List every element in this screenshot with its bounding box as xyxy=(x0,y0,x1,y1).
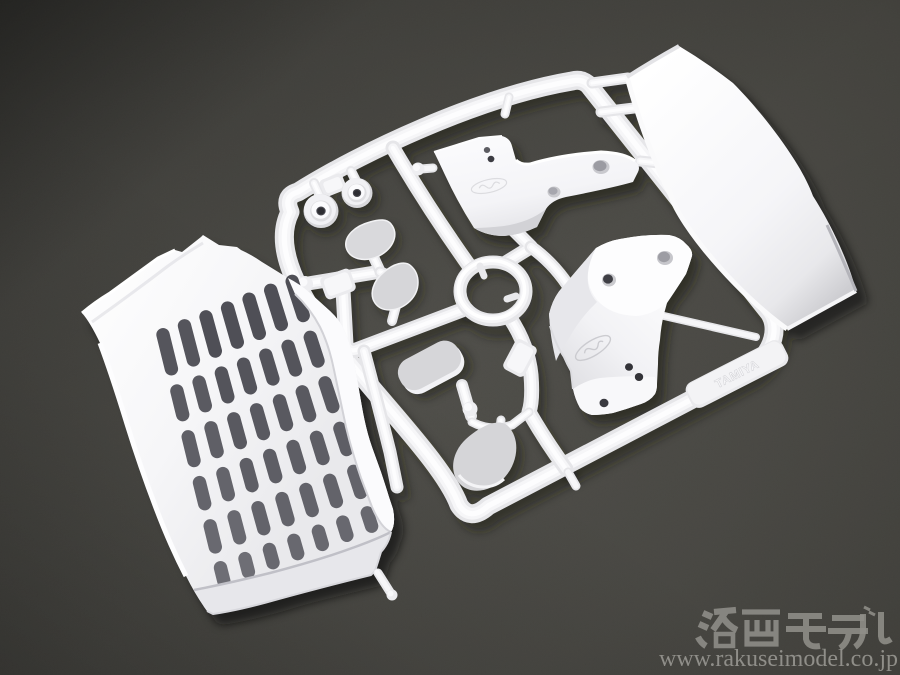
svg-text:www.rakuseimodel.co.jp: www.rakuseimodel.co.jp xyxy=(659,646,898,672)
